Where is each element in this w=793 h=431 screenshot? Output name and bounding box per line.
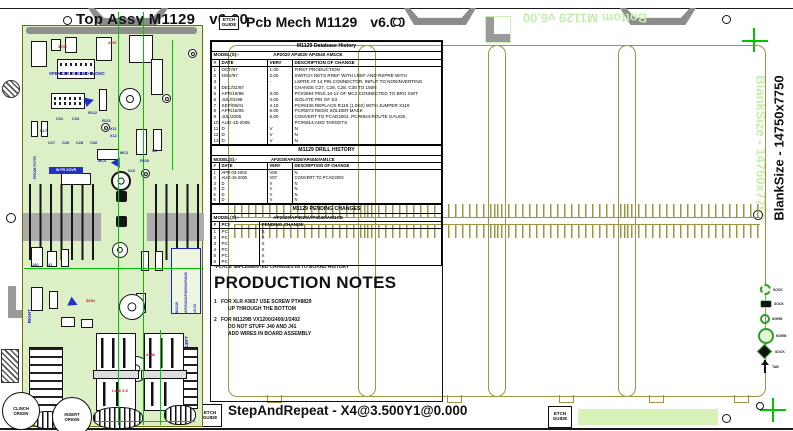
- component-outline: [61, 249, 69, 267]
- insert-origin-label: ORIGIN: [65, 417, 80, 422]
- production-note-1: 1 FOR XLR #3657 USE SCREW PT#8829 UP THR…: [221, 299, 312, 313]
- opamp-triangle-icon: [67, 297, 79, 310]
- etch-guide-label: GUIDE: [203, 416, 218, 421]
- silk-red-label: 3497: [108, 40, 117, 45]
- bottom-layer-title-mirrored: Bottom M1129 v6.00: [523, 11, 647, 26]
- refdes-label: X11: [110, 126, 117, 131]
- output-connector-outline: [144, 333, 184, 411]
- potentiometer-outline: [119, 88, 141, 110]
- panel-top-edge: [0, 8, 793, 10]
- silk-label: FROM POTS: [32, 156, 37, 179]
- silk-title-block: M1129 AP2020/AP4020/AP4040 v6.00: [171, 248, 201, 314]
- tooling-hole: [393, 18, 401, 26]
- airwire-trace: [95, 421, 195, 422]
- component-outline: [49, 291, 58, 309]
- pcb-board: SPEAKER -STEREO- MONO FROM POTS IN FR XO…: [22, 25, 203, 427]
- component-outline: [151, 59, 163, 95]
- refdes-label: C31: [56, 116, 63, 121]
- refdes-label: J40: [32, 262, 39, 267]
- refdes-label: C27: [48, 140, 55, 145]
- solder-strip: [578, 409, 718, 425]
- mounting-hole: [112, 242, 128, 258]
- route-tab-icon: [559, 395, 574, 403]
- silk-label-left: LEFT: [184, 336, 189, 347]
- refdes-label: S3: [152, 148, 157, 153]
- airwire-trace: [118, 12, 119, 425]
- drawing-frame: M1129 Database HistoryMODEL(S):-AP2020 A…: [210, 40, 443, 402]
- drill-legend-item: NORM: [760, 314, 782, 324]
- board-outline-copy-3: [488, 45, 636, 397]
- etch-guide-label: GUIDE: [222, 23, 237, 28]
- etch-guide-label: GUIDE: [553, 417, 568, 422]
- refdes-label: R111: [102, 118, 111, 123]
- drill-legend-item: SOCK: [760, 347, 785, 356]
- production-note-2: 2 FOR M1129B VX1200/2400/J/2402 DO NOT S…: [221, 317, 311, 337]
- tooling-hole: [6, 213, 16, 223]
- component-outline: [99, 89, 107, 111]
- route-tab-icon: [447, 395, 462, 403]
- airwire-trace: [172, 40, 173, 170]
- mounting-hole: [188, 49, 197, 58]
- etch-guide-box: ETCH GUIDE: [548, 406, 572, 428]
- dashed-circle-pad-icon: [760, 284, 771, 295]
- component-outline: [129, 35, 153, 63]
- component-outline: [81, 319, 93, 328]
- silk-label: SPEAKER -STEREO- MONO: [49, 71, 105, 76]
- refdes-label: C29: [62, 140, 69, 145]
- drill-history-table: M1129 DRILL HISTORYMODEL(S):-AP2020/AP40…: [211, 145, 442, 203]
- silk-label-right: RIGHT: [27, 309, 32, 323]
- route-tab-icon: [734, 395, 749, 403]
- fab-drawing-canvas: Top Assy M1129v6.00 ETCH GUIDE Pcb Mech …: [0, 0, 793, 431]
- legend-label: SOCK: [775, 350, 785, 354]
- refdes-label: J41: [46, 262, 53, 267]
- note-number: 2: [214, 317, 217, 324]
- board-top-rail: [26, 27, 197, 34]
- hatched-keepout: [1, 349, 19, 383]
- silk-red-label: LINE 2.5: [112, 388, 128, 393]
- step-and-repeat-label: StepAndRepeat - X4@3.500Y1@0.000: [228, 403, 467, 418]
- opamp-triangle-icon: [84, 95, 95, 107]
- clinch-origin-marker: CLINCH ORIGIN: [2, 392, 40, 430]
- ring-pad-icon: [760, 314, 770, 324]
- airwire-trace: [143, 12, 144, 425]
- silk-red-label: 3706: [58, 44, 67, 49]
- castellation-icon: [624, 224, 760, 238]
- dip-ic-outline: [51, 93, 85, 109]
- large-ring-pad-icon: [758, 328, 774, 344]
- output-connector-outline: [96, 333, 136, 411]
- tooling-hole: [63, 16, 72, 25]
- castellation-icon: [494, 224, 630, 238]
- component-outline: [61, 317, 75, 327]
- refdes-label: X12: [110, 133, 117, 138]
- production-notes-title: PRODUCTION NOTES: [214, 273, 396, 293]
- component-outline: [136, 129, 147, 155]
- refdes-label: C34: [72, 116, 79, 121]
- drill-legend-item: NORM: [758, 328, 786, 344]
- tooling-hole: [722, 414, 731, 423]
- board-outline-copy-4: [618, 45, 766, 397]
- legend-label: SOCK: [774, 302, 784, 306]
- note-line: UP THROUGH THE BOTTOM: [221, 306, 312, 313]
- pad-circle: [162, 94, 171, 103]
- note-line: FOR M1129B VX1200/2400/J/2402: [221, 317, 311, 324]
- place-changes-note: *PLACE IMPLEMENTED CHANGES IN TO BOARD H…: [214, 265, 349, 270]
- component-outline: [31, 287, 43, 311]
- insert-origin-marker: INSERT ORIGIN: [52, 397, 92, 431]
- castellation-icon: [624, 204, 760, 218]
- black-pad-icon: [760, 300, 772, 308]
- etch-guide-box: ETCH GUIDE: [219, 16, 239, 30]
- refdes-label: C28: [76, 140, 83, 145]
- pad-circle: [101, 123, 110, 132]
- silk-title-version: v6.00: [193, 249, 197, 313]
- clinch-origin-label: ORIGIN: [14, 411, 29, 416]
- refdes-label: R119: [140, 158, 149, 163]
- note-line: ADD WIRES IN BOARD ASSEMBLY: [221, 331, 311, 338]
- note-line: FOR XLR #3657 USE SCREW PT#8829: [221, 299, 312, 306]
- diamond-pad-icon: [758, 345, 771, 358]
- airwire-trace: [160, 330, 161, 425]
- silk-label-bar: IN FR XOVR: [49, 167, 83, 174]
- pcb-mech-label: Pcb Mech M1129: [246, 14, 357, 30]
- fiducial-hatched-circle: [2, 80, 20, 98]
- silk-red-label: 2436: [146, 352, 155, 357]
- tooling-hole: [756, 402, 764, 410]
- legend-label: TAB: [772, 365, 779, 369]
- castellation-icon: [494, 204, 630, 218]
- drill-legend-item: SOCK: [760, 300, 784, 308]
- refdes-label: MC3: [98, 158, 106, 163]
- airwire-trace: [24, 268, 202, 269]
- silk-title-series: AP2020/AP4020/AP4040: [184, 249, 188, 313]
- layer-mark-L-icon: [486, 17, 510, 42]
- component-outline: [31, 121, 38, 137]
- pin-tab-icon: [760, 360, 770, 373]
- pending-changes-table: M1129 PENDING CHANGESMODEL(S):-AP2020/AP…: [211, 204, 442, 267]
- mounting-hole: [111, 171, 131, 191]
- refdes-label: C30: [90, 140, 97, 145]
- drill-legend-item: SOCK: [760, 284, 783, 295]
- refdes-label: MC2: [120, 150, 128, 155]
- legend-label: NORM: [772, 317, 782, 321]
- potentiometer-outline: [119, 294, 145, 320]
- note-number: 1: [214, 299, 217, 306]
- pcb-mech-title: Pcb Mech M1129v6.00: [246, 14, 405, 30]
- refdes-label: C17: [40, 128, 47, 133]
- dip-ic-outline: [57, 59, 95, 79]
- tooling-hole: [722, 15, 731, 24]
- note-line: DO NOT STUFF J40 AND J41: [221, 324, 311, 331]
- blank-size-label: BlankSize - 14750x7750: [772, 75, 787, 220]
- silk-red-label: 3694: [86, 298, 95, 303]
- route-tab-icon: [649, 395, 664, 403]
- component-outline: [31, 41, 47, 67]
- refdes-label: X13: [128, 168, 135, 173]
- silk-title-model: M1129: [175, 249, 179, 313]
- refdes-label: R112: [88, 110, 97, 115]
- legend-label: NORM: [776, 334, 786, 338]
- drill-legend-item: TAB: [760, 360, 779, 373]
- db-history-table: M1129 Database HistoryMODEL(S):-AP2020 A…: [211, 41, 442, 145]
- legend-label: SOCK: [773, 288, 783, 292]
- tooling-notch-icon: [404, 8, 476, 25]
